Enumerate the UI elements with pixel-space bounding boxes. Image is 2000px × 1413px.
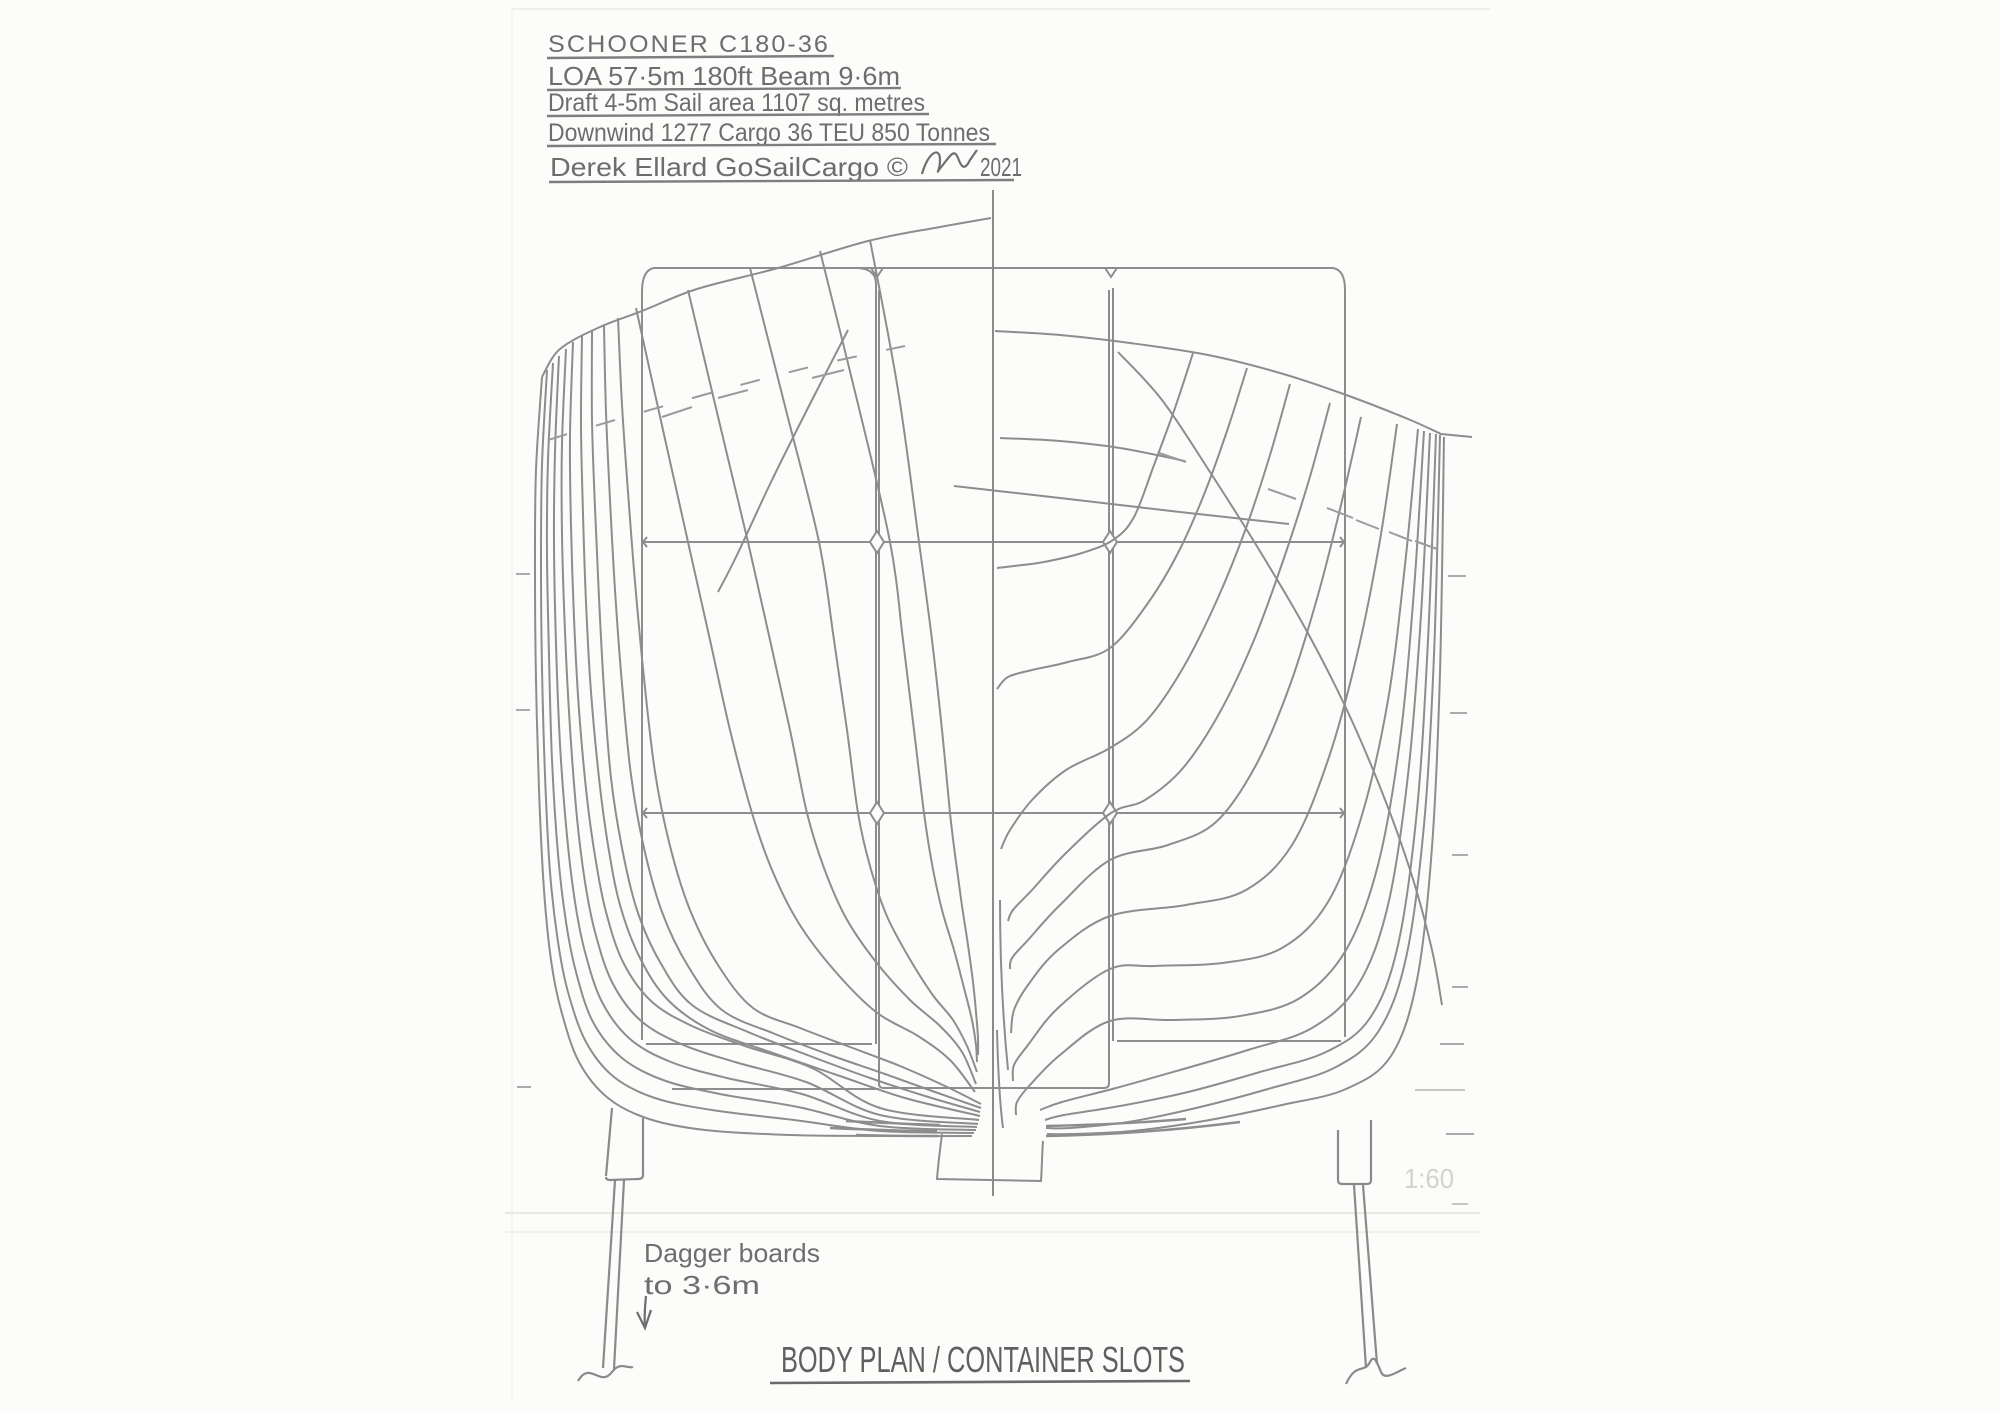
svg-text:LOA 57·5m 180ft Beam 9·6m: LOA 57·5m 180ft Beam 9·6m (548, 61, 900, 91)
svg-text:to 3·6m: to 3·6m (644, 1270, 760, 1300)
svg-text:1:60: 1:60 (1404, 1163, 1454, 1194)
svg-text:Draft 4-5m Sail area 1107 sq.: Draft 4-5m Sail area 1107 sq. metres (548, 89, 925, 117)
svg-text:Dagger boards: Dagger boards (644, 1238, 820, 1268)
svg-text:Derek Ellard GoSailCargo ©: Derek Ellard GoSailCargo © (550, 152, 908, 182)
svg-text:SCHOONER C180-36: SCHOONER C180-36 (548, 31, 830, 58)
svg-text:2021: 2021 (980, 152, 1022, 182)
svg-text:BODY PLAN / CONTAINER SLOTS: BODY PLAN / CONTAINER SLOTS (781, 1339, 1185, 1380)
svg-text:Downwind 1277 Cargo 36 TEU 85: Downwind 1277 Cargo 36 TEU 850 Tonnes (548, 119, 990, 147)
